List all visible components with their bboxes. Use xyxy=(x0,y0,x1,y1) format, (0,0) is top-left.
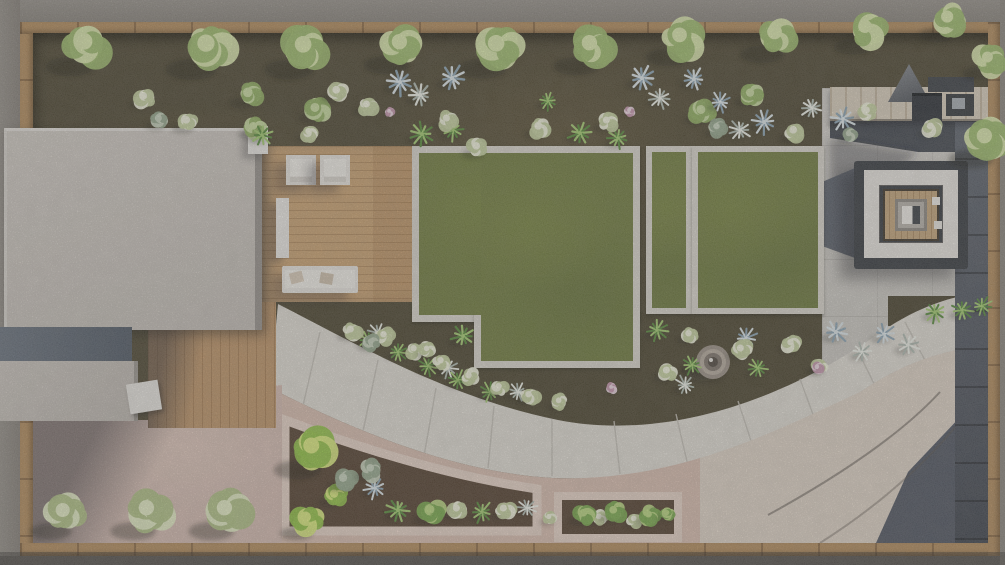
bottom-shadow-band xyxy=(0,552,1005,565)
lounge-chair-2 xyxy=(320,155,350,185)
fence-right xyxy=(988,22,1000,556)
side-table xyxy=(932,197,940,205)
sofa-pillow xyxy=(319,272,334,285)
sink-basin xyxy=(952,98,965,109)
lawn-large-ext xyxy=(481,153,633,361)
house-roof-main xyxy=(4,128,262,330)
entry-step xyxy=(126,380,162,415)
side-table xyxy=(934,221,942,229)
landscape-plan-render xyxy=(0,0,1005,565)
perimeter-gravel-top xyxy=(0,0,1005,22)
outdoor-sofa xyxy=(282,266,358,293)
lounge-chair-1 xyxy=(286,155,316,185)
chair-back xyxy=(290,177,312,182)
fire-pit-lounge xyxy=(854,161,968,269)
lawn-right xyxy=(698,152,818,308)
fire-table-top xyxy=(902,206,920,224)
house-roof-lower xyxy=(0,361,138,421)
kitchen-sink xyxy=(946,94,974,116)
grill xyxy=(912,93,942,121)
perimeter-gravel-right xyxy=(1000,0,1005,565)
white-planter-box xyxy=(248,126,268,154)
fire-table xyxy=(898,202,924,228)
house-roof-slate xyxy=(0,327,132,362)
deck-tone-split xyxy=(373,146,412,302)
chair-cushion xyxy=(290,159,312,176)
chair-cushion xyxy=(324,159,346,176)
lawn-strip xyxy=(652,152,686,308)
deck-console xyxy=(276,198,289,258)
kitchen-back-slab xyxy=(928,77,974,92)
chair-back xyxy=(324,177,346,182)
